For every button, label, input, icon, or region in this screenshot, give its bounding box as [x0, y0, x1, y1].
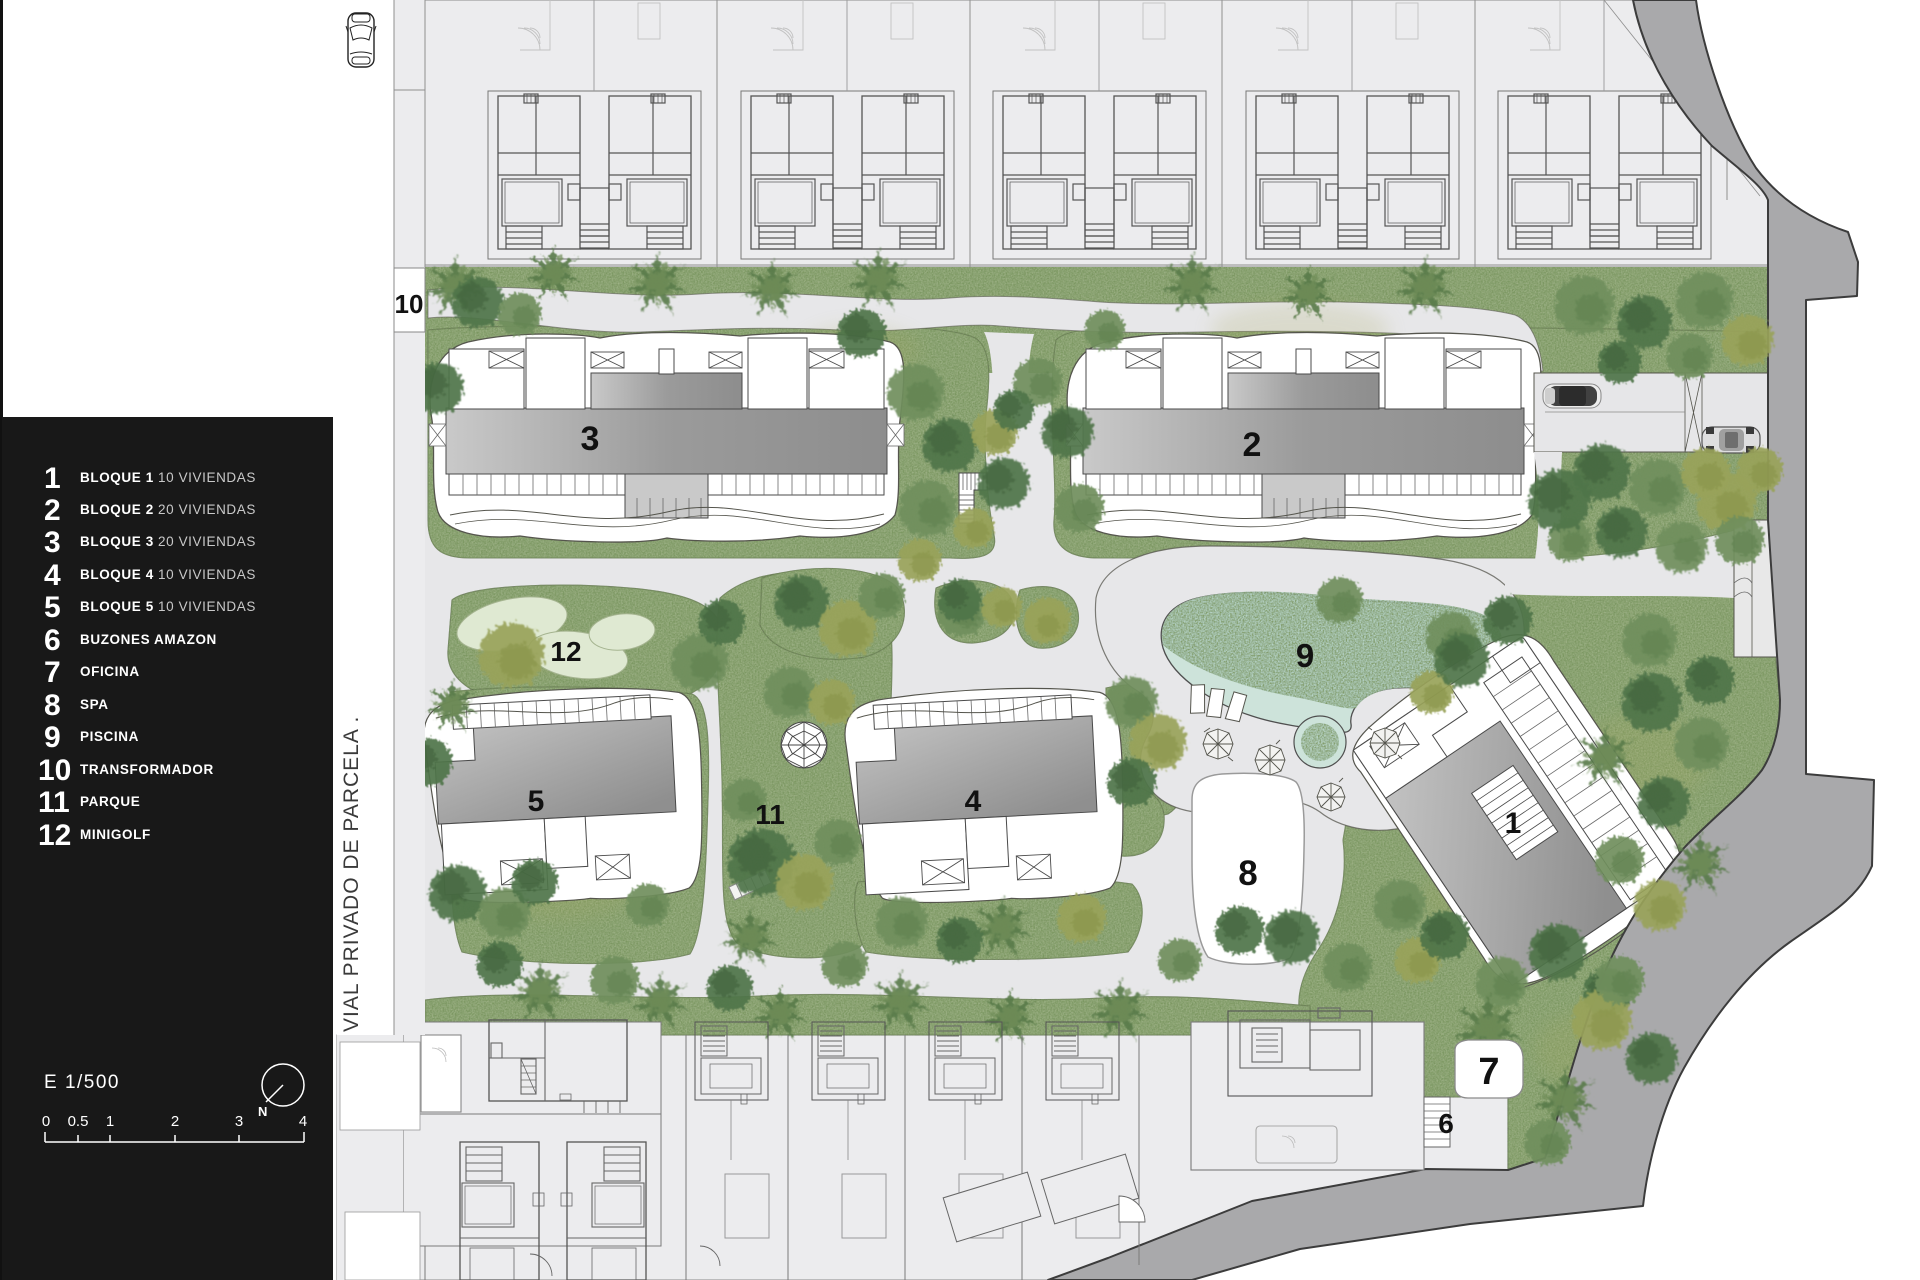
svg-text:2: 2: [1243, 426, 1262, 464]
svg-text:OFICINA: OFICINA: [80, 664, 140, 679]
svg-text:11: 11: [38, 786, 70, 819]
svg-text:PISCINA: PISCINA: [80, 729, 139, 744]
svg-text:0.5: 0.5: [68, 1113, 89, 1130]
svg-text:9: 9: [44, 721, 61, 754]
svg-text:12: 12: [38, 819, 71, 852]
svg-text:5: 5: [44, 591, 61, 624]
svg-text:3: 3: [581, 420, 600, 458]
svg-text:SPA: SPA: [80, 697, 109, 712]
svg-text:10: 10: [38, 754, 71, 787]
svg-text:10 VIVIENDAS: 10 VIVIENDAS: [158, 567, 256, 582]
svg-text:12: 12: [550, 636, 581, 667]
svg-text:6: 6: [44, 624, 61, 657]
svg-text:20 VIVIENDAS: 20 VIVIENDAS: [158, 534, 256, 549]
svg-text:PARQUE: PARQUE: [80, 794, 140, 809]
svg-text:3: 3: [235, 1113, 243, 1130]
svg-text:10 VIVIENDAS: 10 VIVIENDAS: [158, 599, 256, 614]
svg-text:10 VIVIENDAS: 10 VIVIENDAS: [158, 470, 256, 485]
svg-text:2: 2: [44, 494, 61, 527]
svg-text:N: N: [258, 1104, 267, 1119]
svg-text:E 1/500: E 1/500: [44, 1072, 120, 1093]
svg-text:VIAL PRIVADO DE PARCELA .: VIAL PRIVADO DE PARCELA .: [340, 716, 363, 1032]
svg-text:1: 1: [1505, 807, 1522, 840]
svg-text:7: 7: [1478, 1051, 1499, 1093]
svg-text:TRANSFORMADOR: TRANSFORMADOR: [80, 762, 214, 777]
svg-text:0: 0: [42, 1113, 50, 1130]
svg-text:7: 7: [44, 656, 61, 689]
svg-text:20 VIVIENDAS: 20 VIVIENDAS: [158, 502, 256, 517]
svg-text:2: 2: [171, 1113, 179, 1130]
svg-text:4: 4: [965, 785, 982, 818]
svg-text:4: 4: [299, 1113, 307, 1130]
svg-text:1: 1: [106, 1113, 114, 1130]
svg-text:BLOQUE 4: BLOQUE 4: [80, 567, 154, 582]
svg-text:MINIGOLF: MINIGOLF: [80, 827, 151, 842]
svg-text:10: 10: [395, 289, 424, 319]
svg-text:BLOQUE 3: BLOQUE 3: [80, 534, 154, 549]
svg-text:BLOQUE 2: BLOQUE 2: [80, 502, 154, 517]
svg-text:8: 8: [44, 689, 61, 722]
svg-text:9: 9: [1296, 637, 1314, 674]
svg-text:5: 5: [528, 785, 545, 818]
svg-text:1: 1: [44, 462, 61, 495]
svg-text:BLOQUE 5: BLOQUE 5: [80, 599, 154, 614]
svg-text:6: 6: [1438, 1108, 1454, 1139]
svg-text:BLOQUE 1: BLOQUE 1: [80, 470, 154, 485]
svg-text:8: 8: [1238, 854, 1257, 893]
svg-text:3: 3: [44, 526, 61, 559]
svg-text:BUZONES AMAZON: BUZONES AMAZON: [80, 632, 217, 647]
svg-text:11: 11: [755, 799, 785, 830]
svg-text:4: 4: [44, 559, 61, 592]
